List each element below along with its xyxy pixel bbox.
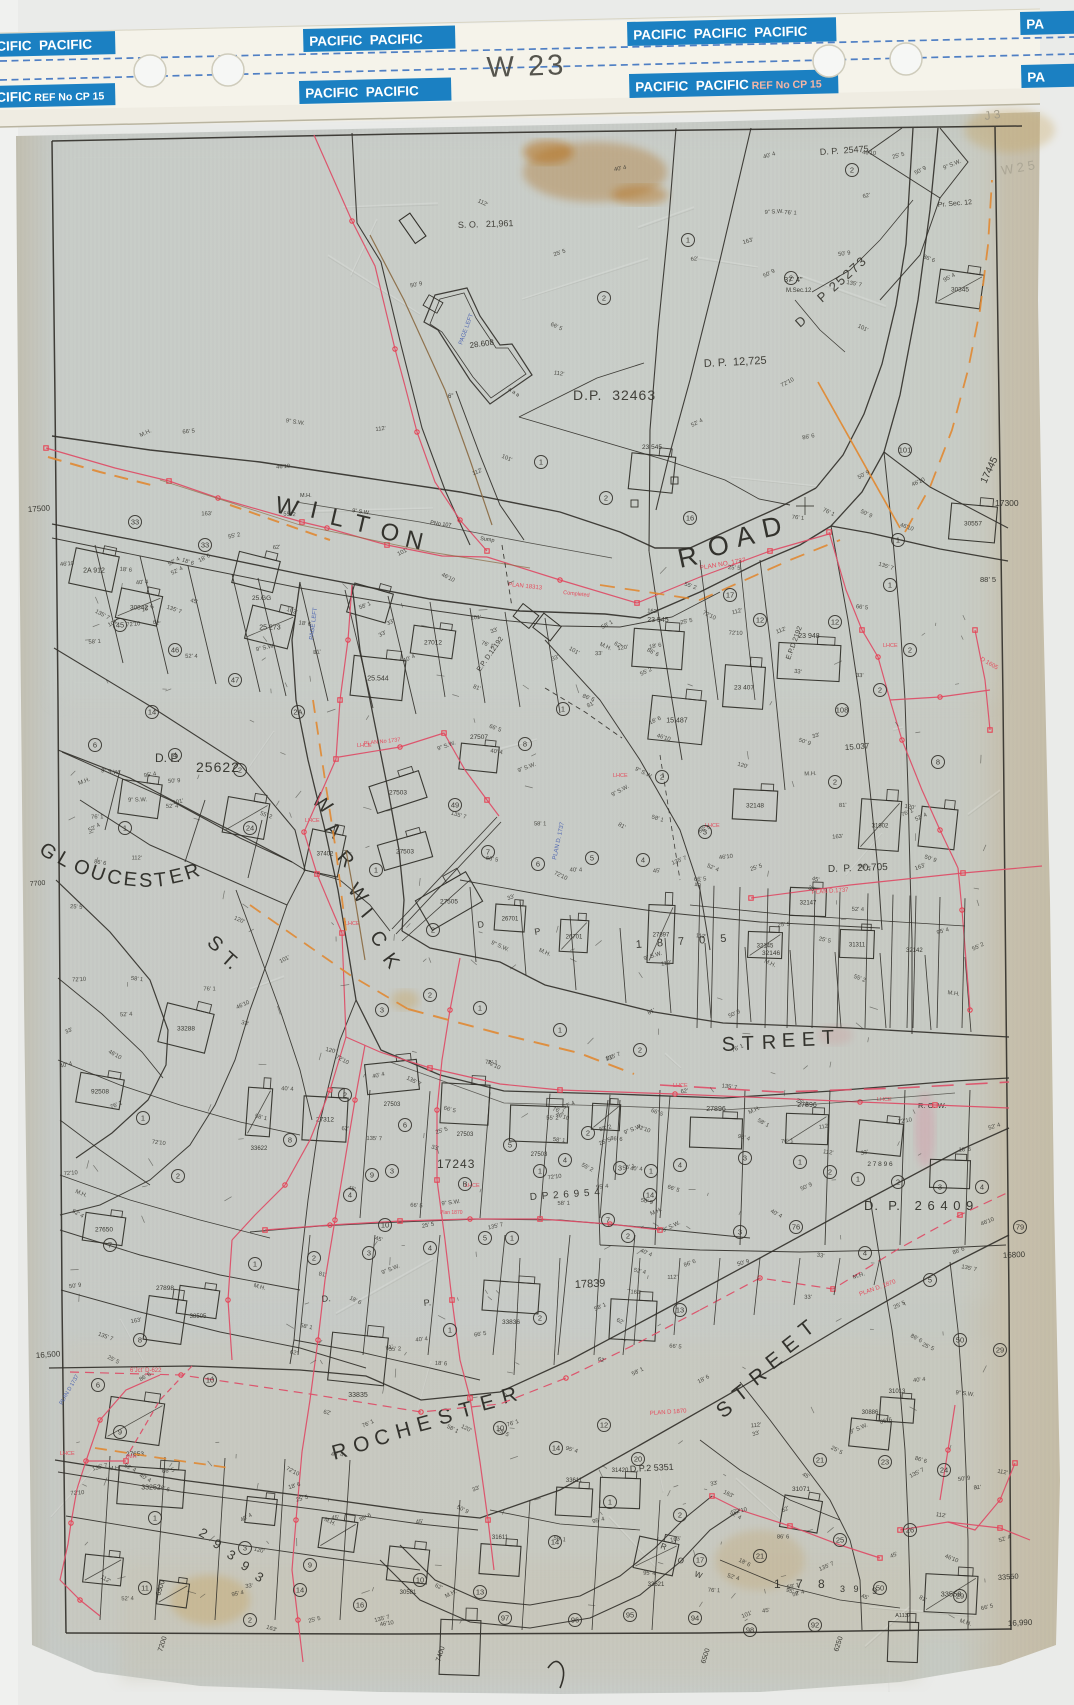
svg-text:3: 3: [618, 1164, 622, 1173]
svg-text:B: B: [462, 1180, 467, 1189]
svg-text:31013: 31013: [889, 1389, 906, 1395]
svg-text:1: 1: [686, 236, 690, 245]
svg-text:33': 33': [245, 1583, 253, 1590]
svg-text:76' 1: 76' 1: [784, 210, 797, 217]
svg-text:55' 2: 55' 2: [546, 1116, 559, 1122]
svg-text:163': 163': [630, 1290, 641, 1297]
svg-text:58' 1: 58' 1: [534, 821, 546, 827]
svg-text:40' 4: 40' 4: [281, 1086, 294, 1093]
svg-text:66' 5: 66' 5: [182, 428, 195, 435]
svg-text:21: 21: [756, 1552, 764, 1561]
svg-text:W 23: W 23: [486, 49, 567, 84]
svg-text:30581: 30581: [400, 1590, 417, 1596]
svg-text:2: 2: [431, 926, 435, 935]
svg-text:81': 81': [973, 1485, 981, 1492]
svg-text:25' 5: 25' 5: [728, 565, 741, 572]
svg-text:98: 98: [746, 1626, 754, 1635]
svg-text:66' 5: 66' 5: [410, 1203, 423, 1210]
svg-text:1: 1: [448, 1326, 452, 1335]
svg-text:62': 62': [680, 1088, 688, 1095]
svg-text:40' 4: 40' 4: [331, 1452, 344, 1458]
svg-text:33': 33': [816, 1253, 824, 1260]
svg-text:E: E: [122, 868, 138, 891]
svg-text:M.H.: M.H.: [300, 493, 312, 499]
svg-text:2: 2: [176, 1172, 180, 1181]
svg-text:97: 97: [501, 1614, 509, 1623]
svg-text:R: R: [761, 1032, 776, 1054]
svg-text:1: 1: [253, 1260, 257, 1269]
svg-text:2 7 8 9 6: 2 7 8 9 6: [867, 1161, 893, 1168]
svg-text:3: 3: [390, 1167, 394, 1176]
svg-text:8: 8: [523, 740, 527, 749]
svg-text:45': 45': [331, 1515, 339, 1521]
svg-text:LHCE: LHCE: [883, 643, 898, 649]
svg-text:PA: PA: [1026, 16, 1044, 31]
svg-text:D. P. 2 6 4 0 9: D. P. 2 6 4 0 9: [864, 1198, 974, 1213]
svg-text:PACIFIC PACIFIC: PACIFIC PACIFIC: [305, 83, 419, 101]
svg-text:46: 46: [171, 646, 179, 655]
svg-text:13: 13: [476, 1588, 484, 1597]
svg-text:1: 1: [374, 866, 378, 875]
svg-text:1: 1: [649, 1167, 653, 1176]
svg-text:3 9: 3 9: [840, 1584, 862, 1594]
svg-text:23 545: 23 545: [642, 444, 662, 451]
svg-text:25: 25: [836, 1536, 844, 1545]
svg-text:27898: 27898: [156, 1285, 174, 1292]
svg-text:8: 8: [138, 1336, 142, 1345]
svg-text:81': 81': [839, 803, 847, 809]
svg-text:1: 1: [608, 1498, 612, 1507]
svg-text:76' 1: 76' 1: [91, 814, 104, 820]
svg-text:26: 26: [906, 1526, 914, 1535]
svg-text:27503: 27503: [457, 1132, 474, 1138]
svg-text:88’ 5: 88’ 5: [980, 575, 996, 584]
svg-text:LHCE: LHCE: [613, 773, 628, 779]
svg-text:37402: 37402: [317, 852, 334, 858]
svg-text:10: 10: [381, 1221, 389, 1230]
svg-text:72'10: 72'10: [729, 631, 743, 637]
svg-text:31311: 31311: [849, 943, 866, 949]
svg-text:2: 2: [312, 1254, 316, 1263]
svg-text:3: 3: [367, 1249, 371, 1258]
svg-text:2: 2: [896, 1178, 900, 1187]
svg-text:81': 81': [318, 1271, 326, 1278]
svg-text:30345: 30345: [951, 287, 969, 294]
svg-text:79: 79: [1016, 1223, 1024, 1232]
svg-text:LHCE: LHCE: [345, 921, 360, 927]
svg-text:2: 2: [586, 1129, 590, 1138]
svg-text:55' 2: 55' 2: [283, 512, 296, 519]
svg-text:1: 1: [798, 1158, 802, 1167]
svg-text:163': 163': [832, 834, 843, 841]
svg-text:66' 5: 66' 5: [669, 1344, 682, 1351]
svg-text:112': 112': [667, 1275, 678, 1281]
svg-text:16: 16: [686, 514, 694, 523]
svg-text:2: 2: [602, 294, 606, 303]
svg-text:50' 9: 50' 9: [168, 778, 181, 785]
svg-text:49: 49: [451, 801, 459, 810]
svg-text:52' 4: 52' 4: [120, 1012, 133, 1019]
svg-text:40' 4: 40' 4: [136, 579, 150, 586]
svg-text:25 273: 25 273: [259, 625, 281, 632]
svg-text:11: 11: [141, 1584, 149, 1593]
svg-text:3: 3: [243, 1544, 247, 1553]
svg-text:17839: 17839: [575, 1277, 606, 1291]
svg-text:2: 2: [638, 1046, 642, 1055]
svg-text:24: 24: [940, 1466, 948, 1475]
svg-text:32148: 32148: [746, 803, 764, 810]
svg-text:27507: 27507: [470, 734, 488, 741]
svg-text:27897: 27897: [653, 933, 670, 939]
svg-text:16,990: 16,990: [1008, 1618, 1033, 1628]
svg-text:20: 20: [634, 1455, 642, 1464]
svg-text:1: 1: [478, 1004, 482, 1013]
svg-text:46'10: 46'10: [276, 464, 290, 471]
svg-text:3: 3: [380, 1006, 384, 1015]
svg-text:2: 2: [850, 166, 854, 175]
svg-text:30886: 30886: [862, 1410, 879, 1416]
svg-text:4: 4: [173, 751, 177, 760]
svg-text:92: 92: [811, 1621, 819, 1630]
svg-text:18' 6: 18' 6: [958, 1147, 971, 1154]
svg-text:6: 6: [403, 1121, 407, 1130]
svg-text:LHCE: LHCE: [357, 743, 372, 749]
svg-text:16: 16: [356, 1601, 364, 1610]
svg-text:27650: 27650: [95, 1227, 113, 1234]
svg-text:81': 81': [313, 649, 321, 656]
svg-text:5: 5: [928, 1276, 932, 1285]
svg-text:46'10: 46'10: [862, 150, 876, 157]
svg-text:9” S.W.: 9” S.W.: [765, 209, 785, 216]
svg-text:25.GG: 25.GG: [252, 595, 271, 602]
svg-text:32146: 32146: [762, 950, 780, 957]
svg-text:2: 2: [238, 766, 242, 775]
svg-text:18' 6: 18' 6: [435, 1361, 448, 1368]
svg-text:33: 33: [201, 541, 209, 550]
svg-text:112': 112': [375, 426, 386, 433]
svg-text:17500: 17500: [28, 503, 51, 514]
svg-text:86' 6: 86' 6: [610, 1136, 623, 1143]
svg-text:8: 8: [936, 758, 940, 767]
svg-text:15.487: 15.487: [666, 718, 688, 725]
svg-text:58' 1: 58' 1: [88, 639, 101, 646]
svg-text:52' 4: 52' 4: [121, 1596, 134, 1602]
svg-text:2: 2: [538, 1314, 542, 1323]
svg-text:7: 7: [108, 1241, 112, 1250]
svg-text:76' 1: 76' 1: [781, 1138, 794, 1145]
svg-text:62': 62': [341, 1126, 349, 1132]
svg-text:M.H.: M.H.: [804, 771, 817, 777]
svg-text:15.037: 15.037: [845, 741, 871, 752]
svg-text:31420: 31420: [612, 1468, 629, 1474]
svg-text:T: T: [741, 1033, 754, 1055]
svg-text:2: 2: [678, 1511, 682, 1520]
svg-text:27503: 27503: [396, 849, 414, 856]
svg-text:2: 2: [343, 1091, 347, 1100]
svg-text:9: 9: [118, 1428, 122, 1437]
svg-text:6: 6: [96, 1381, 100, 1390]
svg-text:2: 2: [828, 1168, 832, 1177]
svg-text:33': 33': [794, 669, 802, 676]
svg-text:95: 95: [626, 1611, 634, 1620]
svg-text:8: 8: [288, 1136, 292, 1145]
svg-text:72'10: 72'10: [64, 1170, 78, 1177]
svg-text:S: S: [139, 870, 152, 892]
svg-text:38505: 38505: [190, 1314, 207, 1320]
svg-text:D.: D.: [321, 1293, 331, 1304]
svg-text:45': 45': [762, 1608, 770, 1615]
svg-text:95' 4: 95' 4: [643, 1571, 656, 1578]
svg-text:2A 912: 2A 912: [83, 568, 105, 575]
svg-text:52' 4: 52' 4: [166, 804, 179, 810]
svg-text:4: 4: [428, 1244, 432, 1253]
svg-text:62': 62': [690, 256, 698, 263]
svg-text:33835: 33835: [348, 1392, 368, 1399]
svg-text:4: 4: [863, 1249, 867, 1258]
svg-text:33611: 33611: [566, 1478, 583, 1484]
svg-text:30557: 30557: [964, 521, 982, 528]
svg-text:Plan 1870: Plan 1870: [440, 1210, 463, 1216]
svg-text:33622: 33622: [251, 1146, 268, 1152]
svg-text:112': 112': [751, 1422, 762, 1429]
svg-text:47: 47: [231, 676, 239, 685]
svg-text:7700: 7700: [30, 880, 46, 888]
svg-text:6: 6: [93, 741, 97, 750]
svg-text:16,500: 16,500: [36, 1349, 62, 1360]
svg-text:6: 6: [536, 860, 540, 869]
svg-text:95' 4: 95' 4: [596, 1184, 610, 1191]
svg-text:A1137: A1137: [895, 1613, 911, 1619]
svg-text:9: 9: [308, 1561, 312, 1570]
svg-text:1: 1: [561, 705, 565, 714]
svg-text:J 3: J 3: [983, 107, 1001, 123]
svg-text:5: 5: [483, 1234, 487, 1243]
svg-text:52' 4: 52' 4: [852, 907, 865, 913]
svg-text:31611: 31611: [492, 1535, 509, 1541]
svg-text:2: 2: [833, 778, 837, 787]
svg-text:2: 2: [789, 274, 793, 283]
svg-text:17: 17: [696, 1556, 704, 1565]
svg-text:2A: 2A: [293, 708, 302, 717]
svg-text:25' 5: 25' 5: [777, 922, 790, 929]
svg-text:D.P. 32463: D.P. 32463: [573, 387, 656, 403]
svg-text:17: 17: [726, 591, 734, 600]
svg-text:92508: 92508: [91, 1089, 109, 1096]
svg-text:108: 108: [836, 706, 849, 715]
svg-text:1: 1: [539, 458, 543, 467]
svg-text:33': 33': [595, 651, 603, 657]
svg-text:23: 23: [881, 1458, 889, 1467]
svg-text:LHCE: LHCE: [305, 818, 320, 824]
svg-text:163': 163': [201, 511, 212, 517]
svg-text:2: 2: [878, 686, 882, 695]
svg-text:1: 1: [141, 1114, 145, 1123]
svg-text:33': 33': [804, 1295, 812, 1301]
svg-text:T: T: [821, 1027, 834, 1049]
svg-text:LHCE: LHCE: [877, 1097, 892, 1103]
svg-text:S. O. 21,961: S. O. 21,961: [458, 218, 514, 230]
svg-text:17300: 17300: [995, 498, 1019, 508]
svg-text:4: 4: [641, 856, 645, 865]
svg-text:1: 1: [153, 1514, 157, 1523]
svg-text:29: 29: [956, 1592, 964, 1601]
svg-text:PA: PA: [1027, 69, 1045, 84]
svg-text:27012: 27012: [424, 640, 442, 647]
svg-text:4: 4: [563, 1156, 567, 1165]
svg-text:7: 7: [606, 1216, 610, 1225]
svg-text:14: 14: [552, 1444, 560, 1453]
svg-text:1: 1: [896, 536, 900, 545]
svg-text:33: 33: [131, 518, 139, 527]
svg-text:24: 24: [246, 824, 254, 833]
svg-text:58' 1: 58' 1: [557, 1201, 569, 1207]
svg-text:27503: 27503: [384, 1102, 401, 1108]
svg-text:29: 29: [996, 1346, 1004, 1355]
svg-text:E: E: [801, 1029, 815, 1051]
svg-text:23 407: 23 407: [734, 685, 754, 692]
svg-text:52' 4: 52' 4: [185, 654, 198, 660]
svg-text:14: 14: [296, 1586, 304, 1595]
svg-text:112': 112': [131, 855, 141, 861]
svg-text:9” S.W.: 9” S.W.: [128, 797, 148, 804]
svg-text:26701: 26701: [502, 917, 519, 923]
svg-text:25' 5: 25' 5: [70, 904, 83, 911]
svg-text:2: 2: [626, 1232, 630, 1241]
svg-text:40' 4: 40' 4: [570, 867, 583, 873]
svg-text:33621: 33621: [648, 1582, 665, 1588]
svg-text:27503: 27503: [389, 790, 407, 797]
svg-text:CIFIC PACIFIC: CIFIC PACIFIC: [0, 37, 92, 54]
svg-text:76' 1: 76' 1: [708, 1588, 721, 1595]
svg-text:33288: 33288: [177, 1026, 195, 1033]
svg-text:M.H.: M.H.: [109, 1466, 122, 1473]
svg-text:32145: 32145: [757, 944, 774, 950]
svg-text:17243: 17243: [437, 1157, 475, 1171]
svg-text:5: 5: [590, 854, 594, 863]
svg-text:2: 2: [908, 646, 912, 655]
svg-text:3: 3: [738, 1228, 742, 1237]
svg-text:2: 2: [428, 991, 432, 1000]
svg-text:2: 2: [604, 494, 608, 503]
svg-text:31902: 31902: [872, 824, 889, 830]
svg-text:163': 163': [647, 608, 658, 615]
svg-text:E: E: [781, 1030, 795, 1052]
svg-text:18' 6: 18' 6: [119, 567, 132, 574]
svg-text:1: 1: [558, 1026, 562, 1035]
svg-text:72'10: 72'10: [70, 1490, 84, 1497]
svg-text:LHCE: LHCE: [60, 1451, 75, 1457]
svg-text:12: 12: [600, 1421, 608, 1430]
svg-text:33836: 33836: [502, 1319, 520, 1326]
svg-text:3: 3: [938, 1183, 942, 1192]
svg-text:62': 62': [273, 545, 281, 552]
svg-text:1: 1: [888, 581, 892, 590]
svg-text:50: 50: [956, 1336, 964, 1345]
svg-text:1: 1: [123, 824, 127, 833]
svg-text:25.544: 25.544: [367, 676, 389, 683]
svg-text:33550: 33550: [998, 1572, 1019, 1582]
svg-text:5: 5: [508, 1141, 512, 1150]
svg-text:31071: 31071: [792, 1486, 810, 1493]
svg-text:14: 14: [148, 708, 156, 717]
svg-text:135' 7: 135' 7: [366, 1136, 382, 1143]
svg-text:12: 12: [831, 618, 839, 627]
svg-text:94: 94: [691, 1614, 699, 1623]
svg-text:50: 50: [876, 1584, 884, 1593]
svg-text:9: 9: [370, 1171, 374, 1180]
svg-text:4: 4: [678, 1161, 682, 1170]
svg-text:112': 112': [695, 933, 706, 940]
svg-text:21: 21: [816, 1456, 824, 1465]
svg-text:12: 12: [756, 616, 764, 625]
svg-text:25622: 25622: [196, 759, 240, 775]
svg-text:16800: 16800: [1003, 1250, 1026, 1260]
svg-text:4: 4: [980, 1183, 984, 1192]
svg-text:26701: 26701: [566, 935, 583, 941]
svg-text:76: 76: [792, 1223, 800, 1232]
svg-text:96: 96: [571, 1616, 579, 1625]
svg-text:27503: 27503: [531, 1152, 548, 1158]
svg-text:1: 1: [856, 1175, 860, 1184]
svg-text:PACIFIC PACIFIC: PACIFIC PACIFIC: [309, 31, 423, 49]
svg-text:10: 10: [416, 1576, 424, 1585]
svg-text:101: 101: [899, 446, 912, 455]
svg-text:P.: P.: [423, 1297, 431, 1308]
svg-text:76' 1: 76' 1: [203, 987, 215, 993]
svg-text:33': 33': [856, 673, 864, 679]
svg-text:13: 13: [676, 1306, 684, 1315]
svg-text:72'10: 72'10: [72, 977, 86, 984]
svg-text:1: 1: [510, 1234, 514, 1243]
svg-text:86' 6: 86' 6: [777, 1534, 789, 1540]
svg-text:3: 3: [743, 1154, 747, 1163]
svg-text:1: 1: [538, 1167, 542, 1176]
svg-text:45': 45': [653, 868, 661, 875]
svg-text:2: 2: [248, 1616, 252, 1625]
svg-text:M.Sec.12: M.Sec.12: [786, 288, 812, 294]
